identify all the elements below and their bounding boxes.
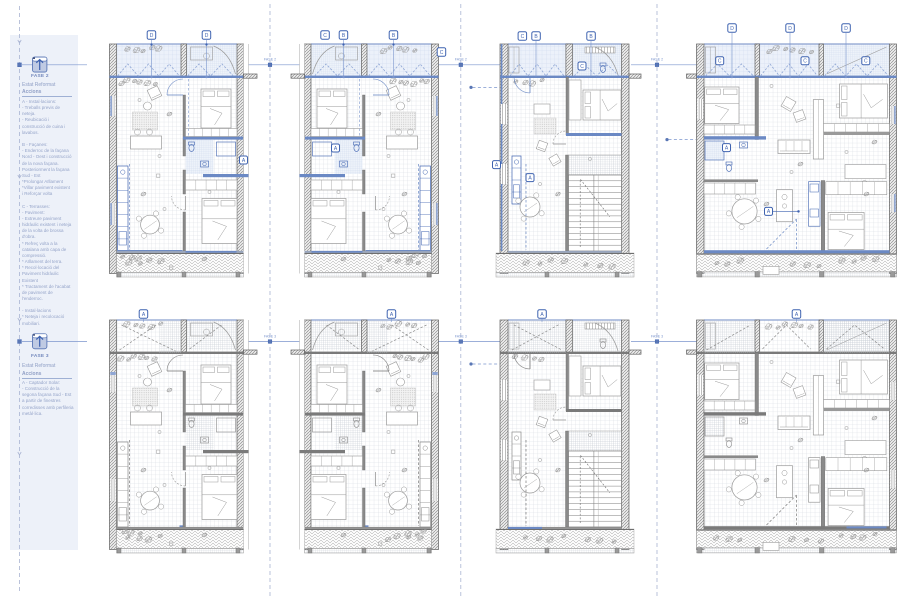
svg-text:D: D <box>788 26 792 32</box>
svg-text:C: C <box>864 59 868 65</box>
svg-text:D: D <box>150 33 154 39</box>
svg-text:D: D <box>205 33 209 39</box>
svg-text:D: D <box>730 26 734 32</box>
svg-text:FASE 2: FASE 2 <box>264 58 276 62</box>
svg-text:FASE 2: FASE 2 <box>651 58 663 62</box>
svg-text:FASE 2: FASE 2 <box>455 58 467 62</box>
svg-text:FASE 3: FASE 3 <box>264 334 276 338</box>
svg-text:C: C <box>718 59 722 65</box>
svg-text:C: C <box>323 33 327 39</box>
svg-text:FASE 3: FASE 3 <box>455 334 467 338</box>
svg-text:C: C <box>440 50 444 56</box>
svg-text:C: C <box>580 64 584 70</box>
svg-text:FASE 3: FASE 3 <box>651 334 663 338</box>
svg-text:C: C <box>803 59 807 65</box>
svg-text:C: C <box>521 34 525 40</box>
svg-text:D: D <box>844 26 848 32</box>
